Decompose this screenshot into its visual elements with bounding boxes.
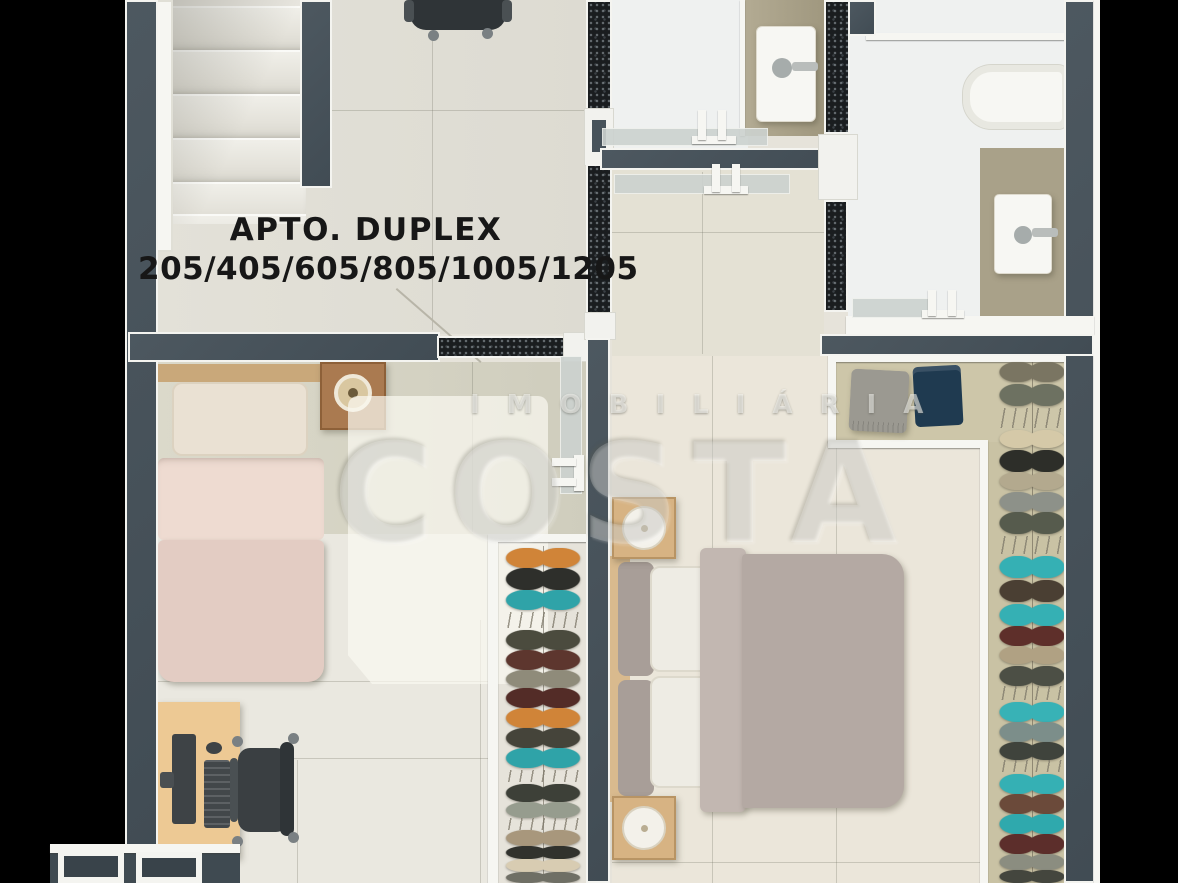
door-bath1-handle	[698, 110, 706, 140]
single-bed-headboard	[158, 364, 322, 382]
floorplan-render: IMOBILIÁRIA COSTA APTO. DUPLEX 205/405/6…	[0, 0, 1178, 883]
hanging-garment	[996, 774, 1068, 794]
wall-bath2-top-stub	[848, 0, 876, 36]
double-bed-gray-pillow	[618, 680, 654, 796]
hanging-garment	[502, 830, 584, 846]
bathroom-2-ledge	[866, 33, 1094, 40]
hanging-garment	[996, 384, 1068, 406]
wall-stair-right	[300, 0, 332, 188]
door-bedroom2	[614, 174, 790, 194]
chair-caster	[482, 28, 493, 39]
double-bed-duvet	[742, 554, 904, 808]
monitor	[172, 734, 196, 824]
tile-line	[297, 760, 298, 883]
hanging-garment	[996, 870, 1068, 883]
hanging-garment	[502, 590, 584, 610]
wall-bath2-bottom	[820, 334, 1094, 356]
hanging-garment	[502, 846, 584, 859]
floor-bathroom-1	[612, 0, 748, 148]
wardrobe-frame	[980, 448, 988, 883]
hanging-garment	[996, 430, 1068, 448]
hanging-garment	[502, 872, 584, 883]
hanging-garment	[996, 722, 1068, 742]
wall-right-outer	[1064, 0, 1095, 883]
nightstand-3-lamp	[622, 806, 666, 850]
door-bath1-handle	[718, 110, 726, 140]
toilet-1-handle	[792, 62, 818, 71]
hanger-lines	[505, 612, 581, 628]
hanger-lines	[999, 686, 1065, 700]
hanger-lines	[505, 818, 581, 830]
hanging-garment	[996, 814, 1068, 834]
door-bath2-handle	[928, 290, 936, 316]
monitor-stand	[160, 772, 174, 788]
hanging-garment	[996, 666, 1068, 686]
door-bath2-handle	[948, 290, 956, 316]
background-right	[1100, 0, 1178, 883]
clothes-rail-mid	[500, 542, 586, 883]
closet-mid-frame	[488, 542, 498, 883]
hanging-garment	[502, 802, 584, 818]
hanging-garment	[502, 728, 584, 748]
chair-caster	[288, 832, 299, 843]
door-bath1	[602, 128, 768, 146]
chair-caster	[232, 736, 243, 747]
wall-bedroom1-top	[128, 332, 440, 362]
tile-line	[702, 172, 703, 354]
hanging-garment	[996, 854, 1068, 870]
door-bedroom2-handle	[704, 186, 748, 194]
apartment-label-line2: 205/405/605/805/1005/1205	[138, 251, 594, 287]
hanging-garment	[996, 742, 1068, 760]
hanging-garment	[502, 670, 584, 688]
hanging-garment	[996, 834, 1068, 854]
hanging-garment	[996, 702, 1068, 722]
chair-caster	[288, 733, 299, 744]
shower-glass-divider	[740, 0, 745, 136]
hanging-garment	[996, 604, 1068, 626]
window-1	[58, 850, 124, 883]
wall-cut-bath2-left	[824, 200, 848, 312]
hanging-garment	[996, 626, 1068, 646]
hanging-garment	[996, 646, 1068, 664]
toilet-1-flush	[772, 58, 792, 78]
hanging-garment	[996, 362, 1068, 382]
hanging-garment	[996, 794, 1068, 814]
keyboard	[204, 760, 230, 828]
chair-caster	[428, 30, 439, 41]
tile-line	[310, 110, 586, 111]
mouse	[206, 742, 222, 754]
hanging-garment	[502, 650, 584, 670]
single-bed-sheet-fold	[158, 458, 324, 540]
toilet-2-flush	[1014, 226, 1032, 244]
tile-line	[612, 232, 824, 233]
wall-left-outer	[125, 0, 158, 852]
hanger-lines	[999, 536, 1065, 554]
wall-cut-bedroom1-top	[437, 336, 567, 358]
clothes-rail-right	[994, 358, 1070, 883]
apartment-label-line1: APTO. DUPLEX	[138, 212, 594, 248]
door-frame-bedroom1	[584, 312, 616, 340]
office-chair-top-armrest	[502, 0, 512, 22]
single-bed-pillow	[172, 382, 308, 456]
hanging-garment	[502, 859, 584, 872]
door-bedroom2-handle	[712, 164, 720, 192]
hanging-garment	[996, 472, 1068, 490]
office-chair-top-seat	[410, 0, 506, 30]
hanging-garment	[502, 784, 584, 802]
double-bed-duvet-fold	[700, 548, 746, 812]
wall-cut-middle-upper	[586, 0, 612, 110]
hanging-garment	[996, 492, 1068, 512]
hanging-garment	[996, 556, 1068, 578]
door-frame-bath2	[818, 134, 858, 200]
door-bedroom2-handle	[732, 164, 740, 192]
hanging-garment	[502, 688, 584, 708]
hanging-garment	[502, 630, 584, 650]
office-chair-top-armrest	[404, 0, 414, 22]
hanging-garment	[502, 708, 584, 728]
hanging-garment	[996, 580, 1068, 602]
office-chair-desk-armrest	[230, 758, 238, 822]
bathtub	[962, 64, 1070, 130]
wall-bath2-bottom-white	[846, 316, 1094, 334]
background-left	[0, 0, 125, 883]
office-chair-desk-back	[280, 742, 294, 836]
hanging-garment	[996, 450, 1068, 472]
wall-bath1-bottom	[600, 148, 852, 170]
staircase-shading	[170, 0, 306, 224]
hanging-garment	[502, 748, 584, 768]
toilet-2-handle	[1032, 228, 1058, 237]
wall-cut-bath-divider	[824, 0, 850, 134]
floor-bedroom-2-top	[612, 170, 824, 356]
hanger-lines	[999, 408, 1065, 428]
hanging-garment	[996, 512, 1068, 534]
single-bed-duvet	[158, 540, 324, 682]
watermark-costa: COSTA	[333, 414, 911, 575]
hanger-lines	[999, 760, 1065, 772]
window-2	[136, 852, 202, 883]
door-bath2	[852, 298, 932, 318]
double-bed-gray-pillow	[618, 562, 654, 676]
apartment-label: APTO. DUPLEX 205/405/605/805/1005/1205	[138, 212, 594, 287]
tile-line	[612, 862, 980, 863]
hanger-lines	[505, 770, 581, 782]
